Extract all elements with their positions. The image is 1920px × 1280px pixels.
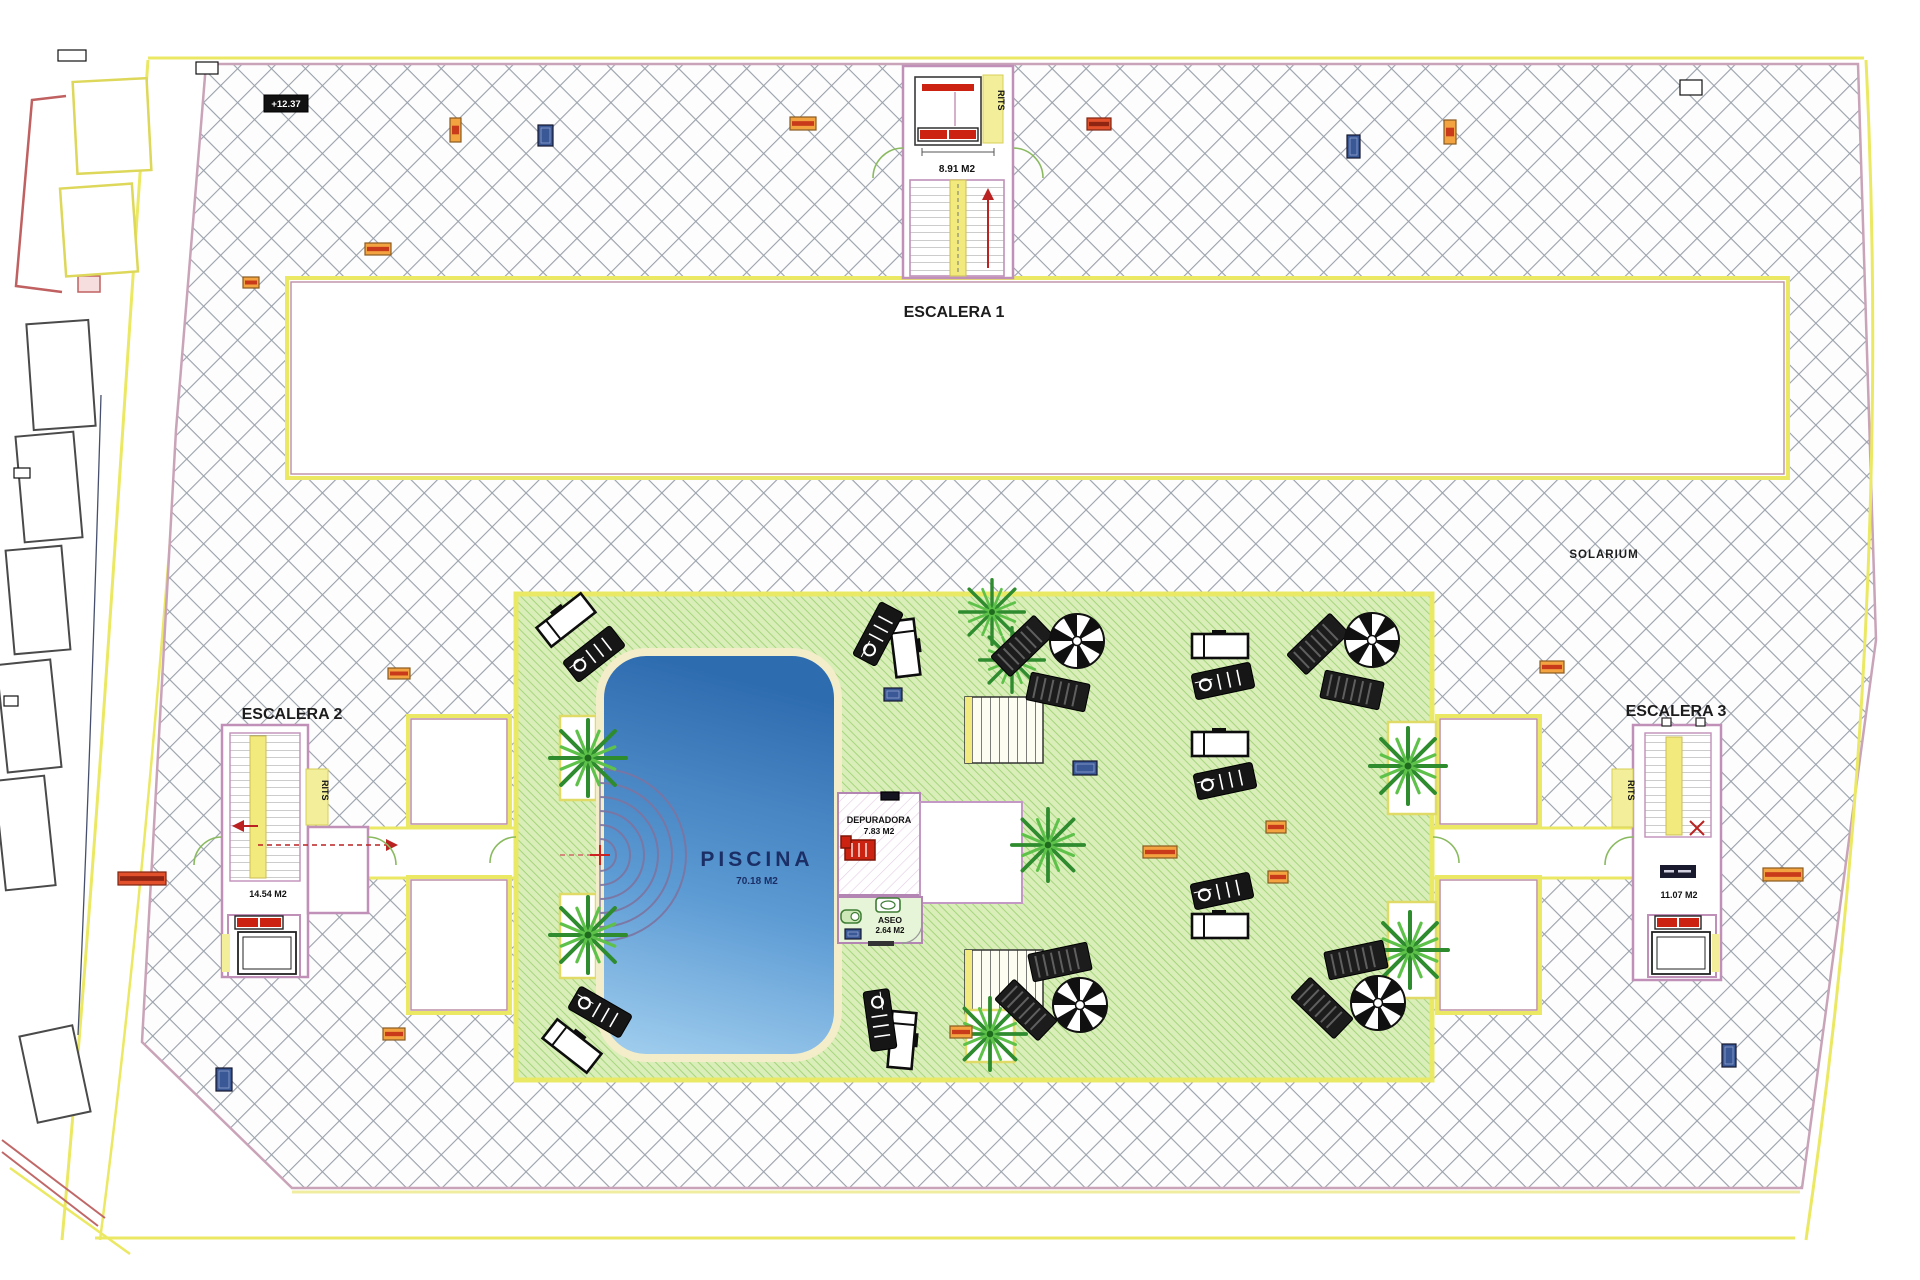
annotation-marker (196, 62, 218, 74)
lift-cabin (1648, 915, 1720, 977)
lift-door-icon (918, 128, 978, 141)
stairwell1-area-label: 8.91 M2 (939, 164, 976, 175)
sun-lounger-white (1192, 910, 1248, 938)
stair-flight (910, 180, 1004, 276)
level-badge: +12.37 (264, 95, 308, 112)
annotation-marker (881, 792, 899, 800)
rits-label-2: RITS (320, 780, 330, 801)
pump-machine-icon (841, 836, 875, 860)
annotation-marker (383, 1028, 405, 1040)
aseo-area-label: 2.64 M2 (876, 926, 905, 935)
lift-cabin (222, 915, 300, 977)
annotation-marker (58, 50, 86, 61)
sun-lounger-white (1192, 728, 1248, 756)
depuradora-area-label: 7.83 M2 (864, 826, 895, 836)
parasol-icon (1345, 613, 1399, 667)
annotation-marker (1540, 661, 1564, 673)
sink-icon (876, 898, 900, 912)
annotation-marker (1143, 846, 1177, 858)
annotation-marker (243, 277, 259, 288)
annotation-marker (1073, 761, 1097, 775)
aseo-label: ASEO (878, 915, 902, 925)
annotation-marker (790, 117, 816, 130)
annotation-marker (1347, 135, 1360, 158)
annotation-marker (1087, 118, 1111, 130)
annotation-marker (1268, 871, 1288, 883)
annotation-marker (14, 468, 30, 478)
annotation-marker (1680, 80, 1702, 95)
pool-area-label: 70.18 M2 (736, 876, 778, 887)
annotation-marker (450, 118, 461, 142)
solarium-label: SOLARIUM (1569, 549, 1638, 561)
annotation-marker (1266, 821, 1286, 833)
annotation-marker (1763, 868, 1803, 881)
pool-label: PISCINA (700, 848, 813, 871)
roof-plan-drawing: PISCINA 70.18 M2 DEPURADORA 7.83 M2 (0, 0, 1920, 1280)
room-tag-badge (1660, 865, 1696, 878)
annotation-marker (884, 688, 902, 701)
stairwell3-area-label: 11.07 M2 (1660, 890, 1697, 900)
annotation-marker (365, 243, 391, 255)
lower-roof-opening (287, 278, 1788, 478)
parasol-icon (1053, 978, 1107, 1032)
stairwell2-label: ESCALERA 2 (242, 706, 343, 723)
annotation-marker (118, 872, 166, 885)
svg-text:+12.37: +12.37 (271, 99, 300, 110)
palm-tree-icon (550, 897, 626, 973)
stairwell3-label: ESCALERA 3 (1626, 703, 1727, 720)
stair-flight (1645, 733, 1711, 837)
annotation-marker (950, 1026, 972, 1038)
annotation-marker (1722, 1044, 1736, 1067)
balcony-cell (0, 78, 151, 1123)
rits-label-1: RITS (996, 90, 1006, 111)
annotation-marker (388, 668, 410, 679)
parasol-icon (1050, 614, 1104, 668)
annotation-marker (1444, 120, 1456, 144)
stairwell2-area-label: 14.54 M2 (249, 889, 287, 899)
toilet-icon (841, 910, 861, 923)
swimming-pool: PISCINA 70.18 M2 (560, 652, 838, 1058)
sun-lounger-white (1192, 630, 1248, 658)
palm-tree-icon (550, 720, 626, 796)
parasol-icon (1351, 976, 1405, 1030)
depuradora-room: DEPURADORA 7.83 M2 (838, 793, 1022, 903)
annotation-marker (4, 696, 18, 706)
annotation-marker (845, 929, 861, 939)
stairwell1-label: ESCALERA 1 (904, 304, 1005, 321)
rits-label-3: RITS (1626, 780, 1636, 801)
annotation-marker (216, 1068, 232, 1091)
palm-tree-icon (1370, 728, 1446, 804)
floor-plan-canvas: PISCINA 70.18 M2 DEPURADORA 7.83 M2 (0, 0, 1920, 1280)
garden-steps (965, 697, 1043, 763)
palm-tree-icon (1012, 809, 1084, 881)
annotation-marker (538, 125, 553, 146)
depuradora-label: DEPURADORA (847, 815, 912, 825)
